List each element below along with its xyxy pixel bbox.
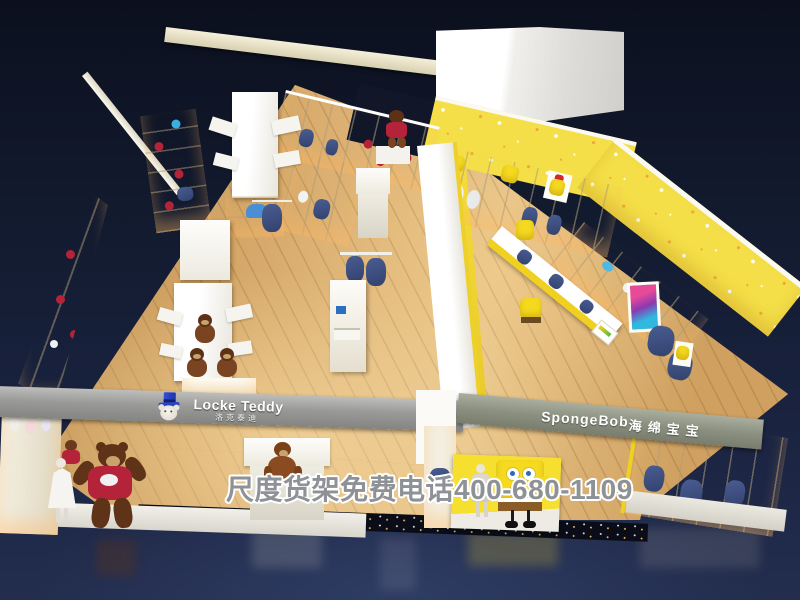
display-item <box>50 340 58 348</box>
spongebob-plush-low <box>520 298 542 324</box>
reflection-right-shelf <box>640 528 760 568</box>
spongebob-shoe <box>523 521 536 528</box>
logo-bear-eye <box>170 410 172 412</box>
back-wall-top-beam <box>164 27 440 76</box>
display-table-small <box>180 220 230 280</box>
spongebob-shorts <box>521 317 541 323</box>
rack-rail <box>252 200 292 202</box>
denim-dress <box>262 204 282 232</box>
plush-bear-red <box>56 295 65 304</box>
locke-teddy-chinese-name: 洛克泰迪 <box>215 412 259 424</box>
locke-teddy-logo-icon <box>155 392 182 422</box>
bear-shirt <box>88 466 132 500</box>
logo-bear-ear <box>173 405 179 411</box>
spongebob-face <box>548 178 566 197</box>
rack-rail <box>340 252 392 255</box>
mannequin-head <box>56 458 66 468</box>
denim-garment <box>366 258 386 286</box>
small-blue-sign <box>336 306 346 314</box>
small-brand-sign <box>334 328 360 340</box>
plush-bear-red <box>174 169 184 179</box>
spongebob-plush <box>500 164 520 184</box>
wall-shelf-unit <box>140 109 212 234</box>
plush-bear-red <box>164 201 174 211</box>
shirt-graphic <box>100 474 118 486</box>
teddy-bear-display <box>216 348 238 378</box>
plush-bear-red <box>363 139 374 150</box>
reflection-center <box>380 538 416 590</box>
display-item <box>600 259 615 273</box>
display-item <box>171 119 181 129</box>
spongebob-lightbox-sign <box>543 170 573 203</box>
spongebob-brand-name: SpongeBob <box>541 408 629 429</box>
bear-leg <box>388 137 396 148</box>
display-item <box>297 190 309 204</box>
spongebob-body <box>520 298 542 318</box>
bear-muzzle <box>223 354 231 359</box>
spongebob-shoe <box>505 521 518 528</box>
wall-shelf-unit <box>18 190 108 405</box>
hanging-garment <box>9 417 19 431</box>
hanging-garment <box>25 420 35 434</box>
bear-shirt <box>386 122 407 138</box>
bear-leg <box>90 497 112 529</box>
teddy-bear-display <box>194 314 216 344</box>
logo-bear-eye <box>164 410 166 412</box>
denim-garment <box>546 272 566 292</box>
hanging-garment <box>41 418 50 431</box>
watermark-text: 尺度货架免费电话400-680-1109 <box>226 468 633 508</box>
plush-bear-red <box>70 330 79 339</box>
spongebob-small-sign <box>672 341 693 367</box>
plush-bear-red <box>66 250 75 259</box>
mannequin-leg <box>56 508 60 522</box>
garment-rack <box>252 196 292 244</box>
hanging-shirt <box>465 189 482 210</box>
denim-garment <box>642 464 666 493</box>
bear-muzzle <box>193 354 201 359</box>
denim-garment <box>312 198 332 221</box>
display-tower <box>232 92 278 198</box>
denim-garment <box>346 256 364 282</box>
display-table-tall <box>356 168 390 238</box>
denim-garment <box>577 298 595 316</box>
teddy-bear-mascot-large <box>72 440 146 534</box>
teddy-bear-mascot-back <box>380 110 412 150</box>
mid-display-unit <box>330 280 366 372</box>
store-render-scene: Locke Teddy 洛克泰迪 SpongeBob 海绵宝宝 <box>0 0 800 600</box>
denim-garment <box>515 247 535 267</box>
mannequin-leg <box>64 508 68 522</box>
teddy-bear-display <box>186 348 208 378</box>
bear-leg <box>398 137 406 148</box>
bear-muzzle <box>201 320 209 325</box>
sign-squiggle <box>598 325 611 337</box>
reflection-teddy <box>96 540 136 576</box>
denim-garment <box>297 128 315 149</box>
spongebob-face <box>675 345 690 361</box>
denim-garment <box>176 186 194 202</box>
denim-garment <box>324 138 339 156</box>
table-top <box>356 168 390 194</box>
spongebob-plush <box>516 220 534 240</box>
bear-leg <box>112 497 134 529</box>
denim-garment <box>545 213 563 236</box>
plush-bear-red <box>154 142 164 152</box>
spongebob-chinese-name: 海绵宝宝 <box>628 415 705 441</box>
table-body <box>358 194 388 238</box>
